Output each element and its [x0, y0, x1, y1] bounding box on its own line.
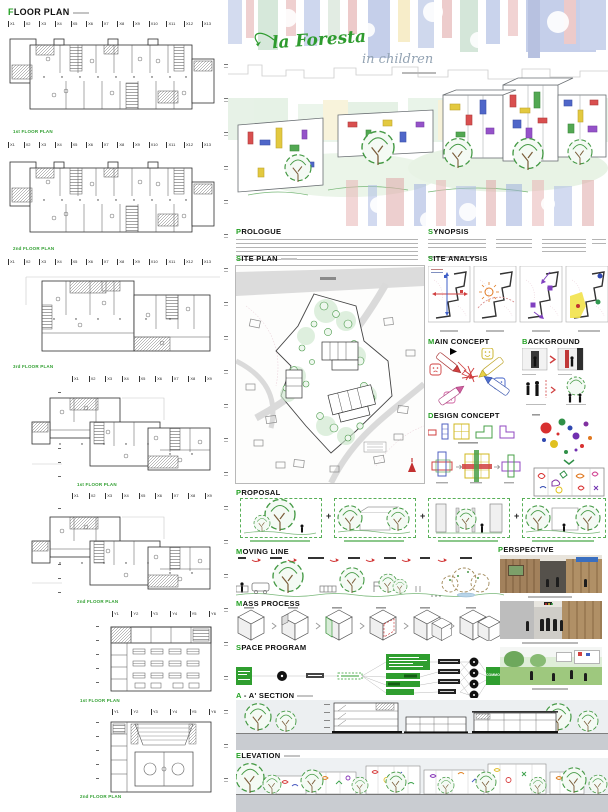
grid-marker: X2	[24, 142, 31, 148]
floor-plan-4-drawing	[28, 386, 213, 482]
hero-subtitle-korean	[402, 72, 436, 74]
background-title: BACKGROUND	[522, 338, 580, 346]
floor-plan-title: FLOOR PLAN	[8, 8, 89, 17]
proposal-sketch-3	[428, 498, 508, 536]
grid-marker: X13	[202, 259, 211, 265]
design-concept-blocks	[428, 422, 528, 490]
grid-marker: X7	[172, 493, 179, 499]
grid-marker: Y4	[170, 709, 177, 715]
design-concept-dots-facade	[532, 414, 608, 500]
grid-marker: X12	[184, 21, 193, 27]
grid-marker: X2	[24, 259, 31, 265]
main-concept-title: MAIN CONCEPT	[428, 338, 490, 346]
main-concept-art	[428, 348, 516, 406]
grid-marker: X13	[202, 21, 211, 27]
grid-marker: Y2	[131, 611, 138, 617]
grid-marker: X3	[105, 493, 112, 499]
grid-marker: Y5	[190, 611, 197, 617]
grid-marker: X4	[55, 142, 62, 148]
plus-separator: +	[326, 512, 331, 521]
plan-label-1: 1st FLOOR PLAN	[13, 130, 53, 135]
grid-marker: X1	[8, 142, 15, 148]
scale-note	[297, 695, 313, 697]
grid-marker: X2	[89, 493, 96, 499]
grid-marker: X6	[86, 21, 93, 27]
synopsis-title: SYNOPSIS	[428, 228, 469, 236]
grid-marker: Y1	[112, 611, 119, 617]
grid-marker: X5	[71, 142, 78, 148]
grid-marker: X3	[105, 376, 112, 382]
grid-marker: Y2	[131, 709, 138, 715]
moving-line-art	[236, 556, 504, 598]
grid-marker: Y4	[170, 611, 177, 617]
mass-process-art	[236, 607, 500, 641]
proposal-sketch-4	[522, 498, 604, 536]
grid-marker: X11	[166, 21, 175, 27]
grid-marker: X9	[133, 259, 140, 265]
hero-subtitle: in children	[362, 52, 433, 67]
floor-plan-6-drawing	[103, 621, 218, 697]
grid-row-x9-2: X1X2X3X4X5X6X7X8X9	[72, 493, 212, 499]
scale-note	[284, 755, 300, 757]
grid-marker: X4	[122, 376, 129, 382]
perspective-render-3	[500, 647, 602, 685]
perspective-render-1	[500, 555, 602, 593]
grid-marker: X7	[102, 259, 109, 265]
grid-marker: X9	[205, 376, 212, 382]
grid-marker: X6	[155, 493, 162, 499]
perspective-caption-1	[528, 596, 572, 598]
grid-marker: X8	[117, 21, 124, 27]
elevation-drawing	[236, 758, 608, 812]
plan-label-3: 3rd FLOOR PLAN	[13, 365, 53, 370]
floor-plan-7-drawing	[103, 718, 218, 796]
grid-marker: X12	[184, 142, 193, 148]
plan-label-7: 2nd FLOOR PLAN	[80, 795, 121, 800]
grid-marker: X1	[72, 376, 79, 382]
perspective-render-2	[500, 601, 602, 639]
grid-marker: X6	[86, 259, 93, 265]
grid-marker: X3	[39, 142, 46, 148]
grid-marker: X5	[71, 259, 78, 265]
grid-row-y6-1: Y1Y2Y3Y4Y5Y6	[112, 611, 216, 617]
site-analysis-panels	[428, 266, 608, 328]
proposal-sketch-1	[240, 498, 320, 536]
grid-marker: Y1	[112, 709, 119, 715]
grid-marker: X13	[202, 142, 211, 148]
grid-marker: Y6	[209, 709, 216, 715]
grid-marker: Y6	[209, 611, 216, 617]
scale-note	[73, 12, 89, 14]
grid-marker: Y5	[190, 709, 197, 715]
floor-plan-2-drawing	[8, 152, 218, 248]
plus-separator: +	[514, 512, 519, 521]
grid-marker: X1	[72, 493, 79, 499]
grid-marker: X1	[8, 21, 15, 27]
grid-row-x13-3: X1X2X3X4X5X6X7X8X9X10X11X12X13	[8, 259, 211, 265]
grid-marker: Y3	[151, 611, 158, 617]
plan-label-2: 2nd FLOOR PLAN	[13, 247, 54, 252]
moving-line-title: MOVING LINE	[236, 548, 289, 556]
grid-marker: X12	[184, 259, 193, 265]
proposal-sketch-2	[334, 498, 414, 536]
background-art	[522, 348, 608, 406]
grid-marker: X11	[166, 259, 175, 265]
grid-marker: X4	[122, 493, 129, 499]
grid-marker: X10	[149, 21, 158, 27]
floor-plan-1-drawing	[8, 31, 218, 127]
grid-row-x9-1: X1X2X3X4X5X6X7X8X9	[72, 376, 212, 382]
perspective-caption-3	[532, 688, 568, 690]
grid-row-y6-2: Y1Y2Y3Y4Y5Y6	[112, 709, 216, 715]
grid-marker: X7	[102, 21, 109, 27]
prologue-title: PROLOGUE	[236, 228, 281, 236]
section-drawing	[236, 700, 608, 750]
grid-marker: X5	[139, 376, 146, 382]
grid-marker: X7	[102, 142, 109, 148]
grid-marker: X9	[133, 142, 140, 148]
perspective-caption-2	[522, 642, 578, 644]
grid-row-x13-2: X1X2X3X4X5X6X7X8X9X10X11X12X13	[8, 142, 211, 148]
perspective-title: PERSPECTIVE	[498, 546, 554, 554]
grid-marker: X10	[149, 142, 158, 148]
grid-marker: X6	[155, 376, 162, 382]
grid-marker: Y3	[151, 709, 158, 715]
presentation-board: FLOOR PLAN X1X2X3X4X5X6X7X8X9X10X11X12X1…	[0, 0, 608, 812]
floor-plan-3-drawing	[4, 269, 220, 363]
grid-marker: X2	[24, 21, 31, 27]
plus-separator: +	[420, 512, 425, 521]
plan-label-5: 2nd FLOOR PLAN	[77, 600, 118, 605]
grid-marker: X4	[55, 21, 62, 27]
grid-marker: X6	[86, 142, 93, 148]
floor-plan-5-drawing	[28, 503, 213, 599]
grid-marker: X8	[188, 376, 195, 382]
grid-marker: X5	[71, 21, 78, 27]
grid-marker: X9	[133, 21, 140, 27]
space-program-common-label: COMMON	[486, 674, 500, 678]
site-plan-map	[236, 266, 424, 483]
grid-marker: X3	[39, 259, 46, 265]
proposal-title: PROPOSAL	[236, 489, 281, 497]
grid-marker: X10	[149, 259, 158, 265]
grid-ticks-vertical	[96, 722, 99, 788]
grid-marker: X8	[117, 259, 124, 265]
grid-marker: X8	[188, 493, 195, 499]
site-analysis-title: SITE ANALYSIS	[428, 255, 488, 263]
grid-marker: X7	[172, 376, 179, 382]
section-aa-title: A - A' SECTION	[236, 692, 313, 700]
grid-marker: X4	[55, 259, 62, 265]
grid-ticks-vertical	[96, 626, 99, 692]
scale-note	[281, 258, 297, 260]
grid-marker: X8	[117, 142, 124, 148]
plan-label-6: 1st FLOOR PLAN	[80, 699, 120, 704]
site-plan-title: SITE PLAN	[236, 255, 297, 263]
grid-row-x13-1: X1X2X3X4X5X6X7X8X9X10X11X12X13	[8, 21, 211, 27]
grid-marker: X2	[89, 376, 96, 382]
design-concept-title: DESIGN CONCEPT	[428, 412, 500, 420]
grid-marker: X1	[8, 259, 15, 265]
grid-marker: X3	[39, 21, 46, 27]
plan-label-4: 1st FLOOR PLAN	[77, 483, 117, 488]
grid-marker: X11	[166, 142, 175, 148]
grid-marker: X9	[205, 493, 212, 499]
space-program-title: SPACE PROGRAM	[236, 644, 306, 652]
grid-marker: X5	[139, 493, 146, 499]
